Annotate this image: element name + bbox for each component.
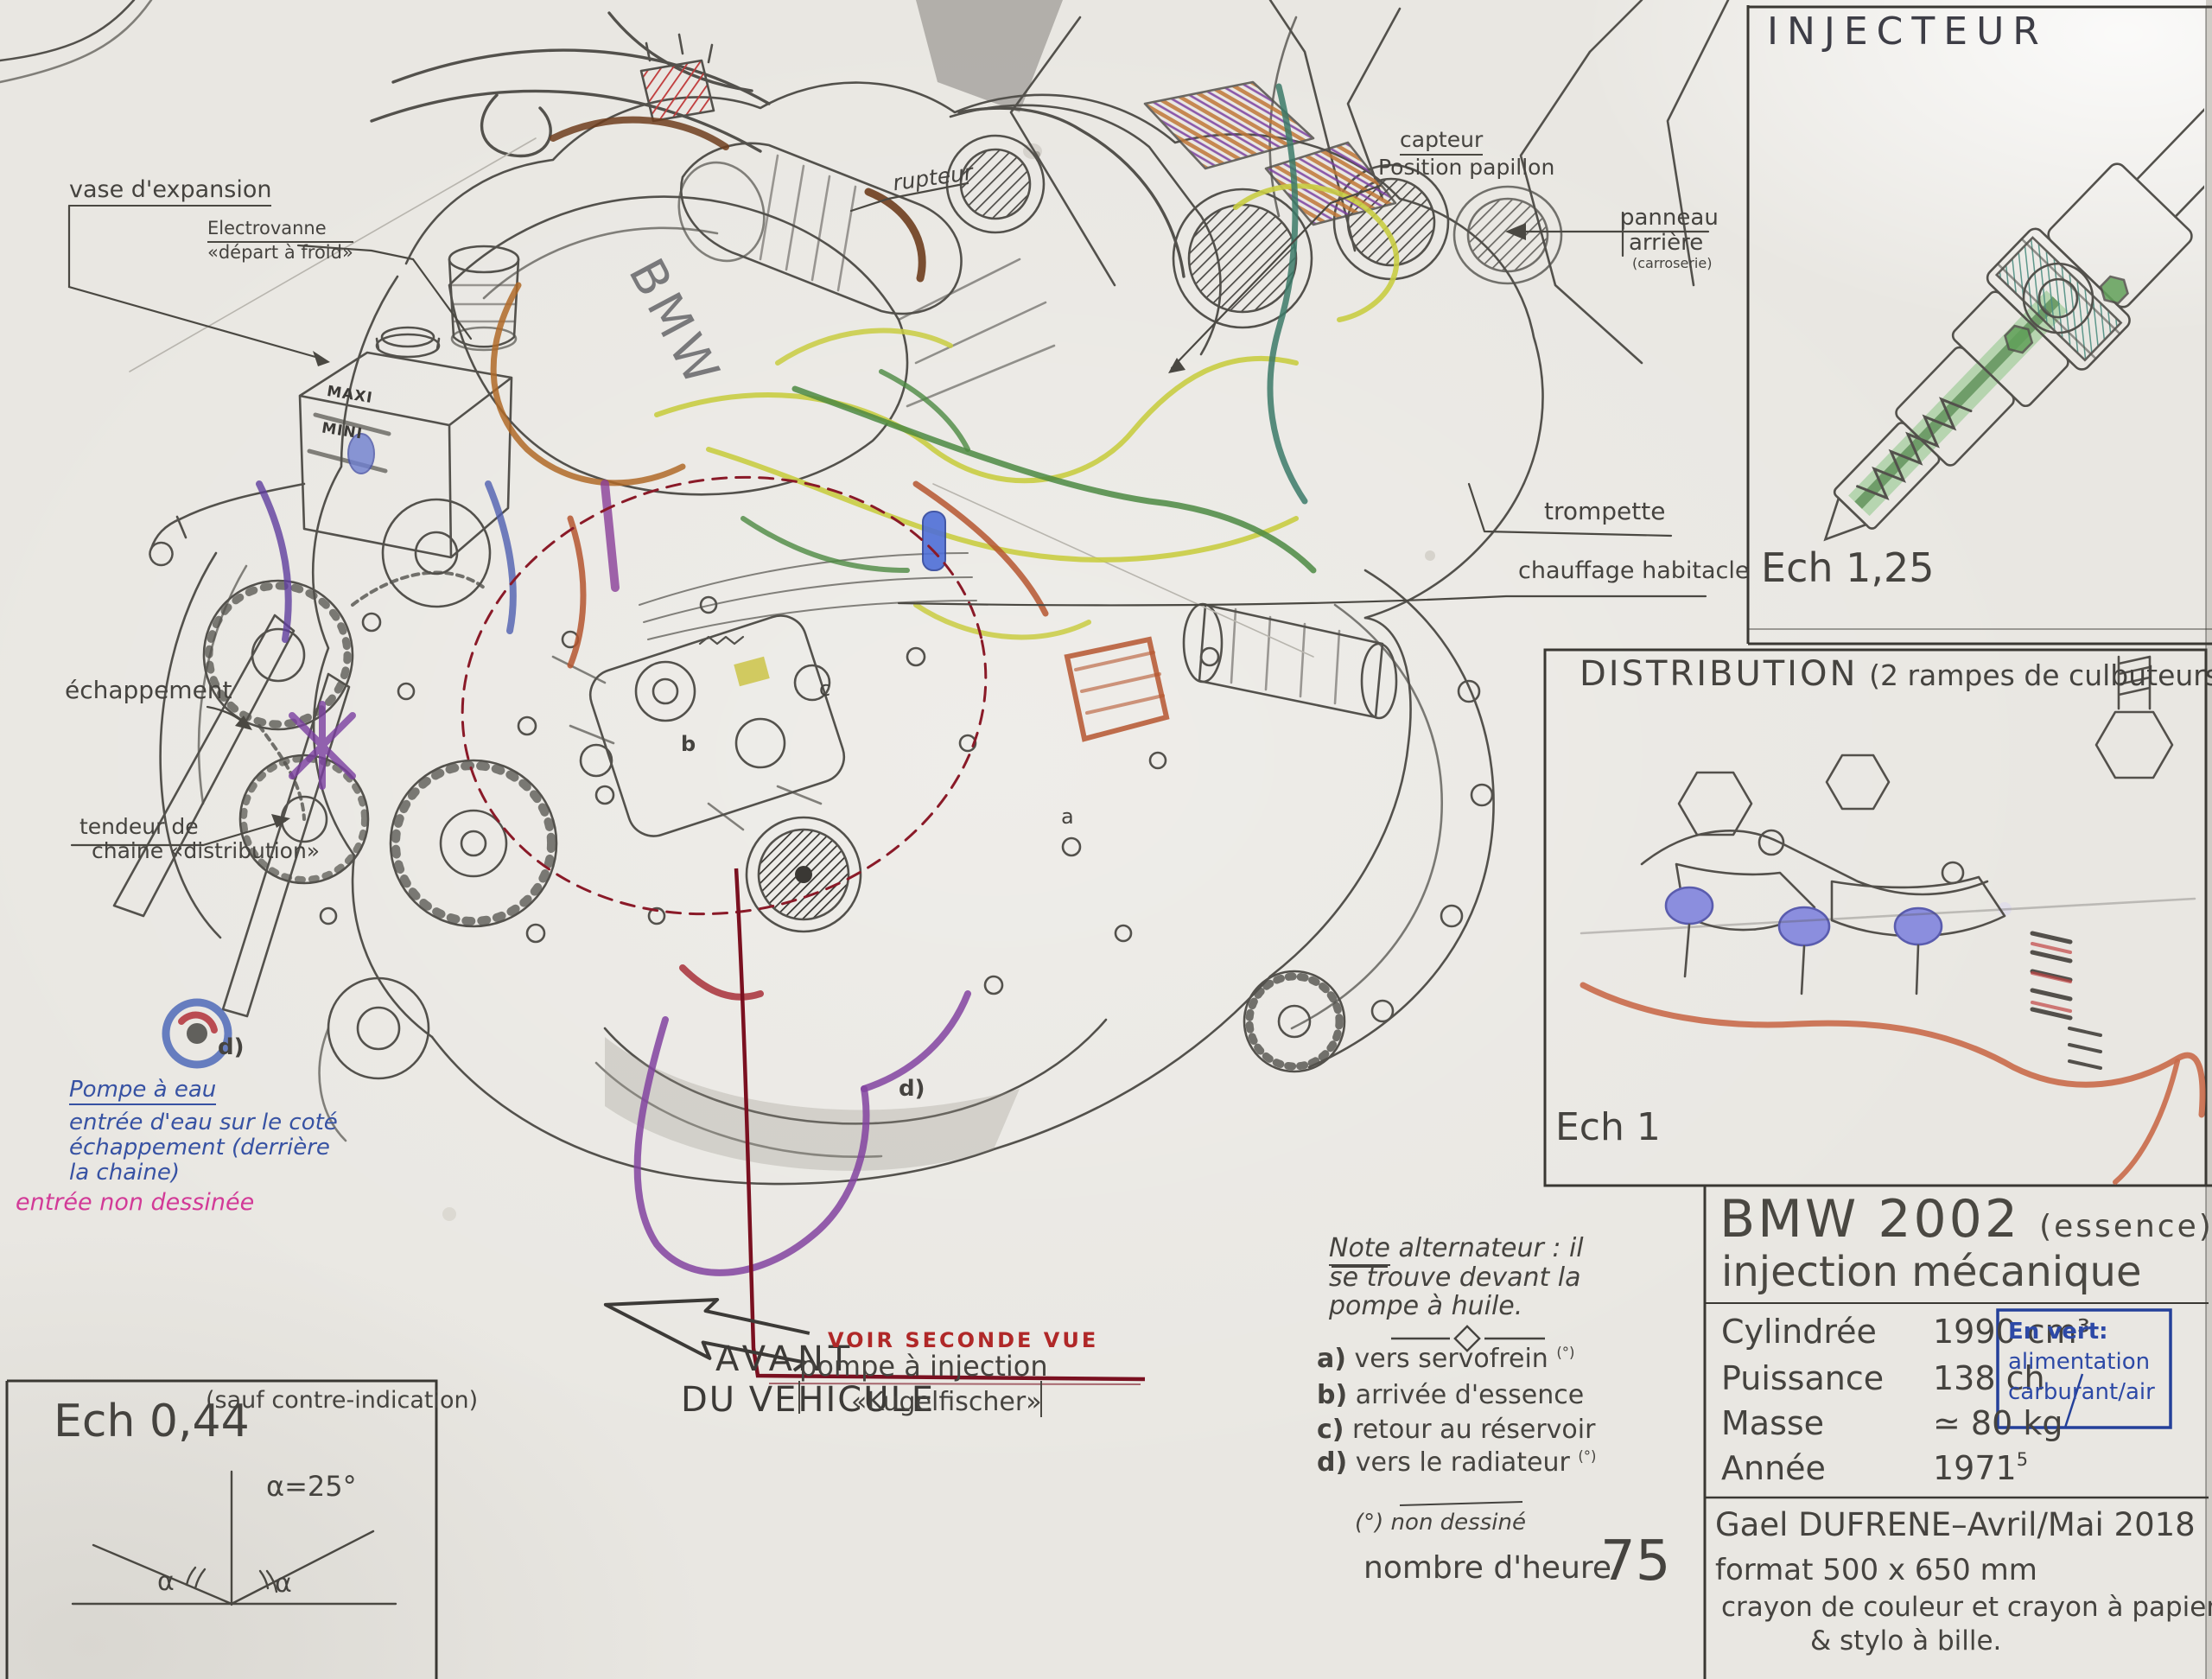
spec-year-mark: 5 <box>2017 1450 2028 1487</box>
green-color-key-note: En vert: alimentation carburant/air <box>2008 1317 2155 1408</box>
label-throttle-line2: Position papillon <box>1378 156 1554 180</box>
spec-model: BMW 2002 <box>1719 1189 2020 1250</box>
distribution-panel-scale: Ech 1 <box>1555 1106 1661 1148</box>
note-item-b-key: b) <box>1317 1380 1347 1410</box>
green-note-line1: En vert: <box>2008 1317 2155 1347</box>
label-throttle-sensor: capteur Position papillon <box>1400 128 1554 180</box>
distribution-title-main: DISTRIBUTION <box>1580 654 1858 694</box>
note-item-a-sup: (°) <box>1556 1345 1574 1361</box>
spec-mass-value: ≃ 80 kg <box>1933 1405 2063 1442</box>
water-pump-line3: échappement (derrière <box>69 1135 338 1161</box>
note-item-d-text: vers le radiateur <box>1356 1447 1579 1478</box>
water-pump-note: Pompe à eau entrée d'eau sur le coté éch… <box>69 1078 338 1186</box>
alternator-note-rest: alternateur : il <box>1390 1233 1584 1263</box>
label-rear-panel-line3: (carroserie) <box>1632 256 1719 271</box>
spec-year-value: 1971 <box>1933 1450 2017 1487</box>
marker-a: a <box>1061 805 1074 829</box>
label-solenoid-line2: «départ à froid» <box>207 243 353 264</box>
signature-materials-line2: & stylo à bille. <box>1810 1626 2001 1657</box>
note-item-a-key: a) <box>1317 1344 1346 1374</box>
label-chain-tensioner-line2: chaine «distribution» <box>92 839 320 863</box>
distribution-panel-title: DISTRIBUTION (2 rampes de culbuteurs) <box>1580 655 2212 694</box>
spec-row-mass: Masse ≃ 80 kg <box>1721 1405 2063 1442</box>
marker-d-left: d) <box>218 1035 245 1060</box>
spec-row-year: Année 1971 5 <box>1721 1450 2028 1487</box>
alternator-note-line3: pompe à huile. <box>1329 1292 1584 1321</box>
water-pump-line2: entrée d'eau sur le coté <box>69 1110 338 1135</box>
alternator-note: Note alternateur : il se trouve devant l… <box>1329 1234 1584 1321</box>
spec-subtitle: injection mécanique <box>1721 1250 2142 1296</box>
spec-mass-label: Masse <box>1721 1405 1933 1442</box>
injector-panel-scale: Ech 1,25 <box>1761 546 1935 591</box>
note-item-d-sup: (°) <box>1578 1448 1596 1465</box>
alternator-note-line2: se trouve devant la <box>1329 1263 1584 1293</box>
injection-pump-label: pompe à injection <box>799 1351 1048 1383</box>
note-item-c-key: c) <box>1317 1415 1344 1445</box>
label-solenoid-line1: Electrovanne <box>207 219 353 243</box>
green-note-line3: carburant/air <box>2008 1377 2155 1408</box>
label-throttle-line1: capteur <box>1400 128 1483 156</box>
spec-fuel: (essence) <box>2039 1209 2212 1244</box>
alternator-note-title: Note <box>1329 1233 1390 1266</box>
spec-row-power: Puissance 138 ch <box>1721 1360 2045 1397</box>
spec-power-label: Puissance <box>1721 1360 1933 1397</box>
marker-b: b <box>681 733 696 756</box>
marker-d-center: d) <box>899 1077 925 1102</box>
note-item-d-key: d) <box>1317 1447 1347 1478</box>
label-trumpet: trompette <box>1544 498 1665 525</box>
hours-label: nombre d'heure <box>1363 1551 1611 1586</box>
distribution-title-sub: (2 rampes de culbuteurs) <box>1869 658 2212 692</box>
note-item-d: d) vers le radiateur (°) <box>1317 1448 1596 1478</box>
injector-panel-title: INJECTEUR <box>1767 10 2048 53</box>
note-item-b: b) arrivée d'essence <box>1317 1381 1584 1410</box>
spec-displacement-label: Cylindrée <box>1721 1313 1933 1351</box>
label-rear-panel: panneau arrière (carroserie) <box>1620 206 1719 271</box>
label-chain-tensioner: tendeur de chaine «distribution» <box>79 815 320 863</box>
alpha-equation: α=25° <box>266 1472 357 1503</box>
green-note-line2: alimentation <box>2008 1347 2155 1377</box>
distribution-sketch <box>1581 657 2202 1182</box>
water-pump-title: Pompe à eau <box>69 1078 216 1105</box>
signature-author-date: Gael DUFRENE–Avril/Mai 2018 <box>1715 1507 2196 1542</box>
label-exhaust: échappement <box>65 677 232 703</box>
marker-c: c <box>819 677 830 701</box>
spec-year-label: Année <box>1721 1450 1933 1487</box>
injector-cutaway <box>1777 39 2212 588</box>
kugelfischer-label: «Kugelfischer» <box>851 1388 1042 1417</box>
note-item-a: a) vers servofrein (°) <box>1317 1345 1574 1374</box>
alpha-left-label: α <box>157 1568 175 1597</box>
label-solenoid: Electrovanne «départ à froid» <box>207 219 353 263</box>
label-chain-tensioner-line1: tendeur de <box>79 815 320 839</box>
note-footnote: (°) non dessiné <box>1355 1510 1526 1536</box>
note-item-c-text: retour au réservoir <box>1352 1415 1595 1445</box>
label-expansion-tank: vase d'expansion <box>69 177 271 207</box>
label-cabin-heating: chauffage habitacle <box>1518 558 1749 584</box>
alpha-right-label: α <box>275 1569 292 1599</box>
scanned-engine-drawing: vase d'expansion Electrovanne «départ à … <box>0 0 2212 1679</box>
hours-value: 75 <box>1600 1531 1670 1593</box>
note-item-c: c) retour au réservoir <box>1317 1415 1595 1445</box>
note-item-b-text: arrivée d'essence <box>1356 1380 1585 1410</box>
note-item-a-text: vers servofrein <box>1355 1344 1557 1374</box>
water-pump-line4: la chaine) <box>69 1161 338 1186</box>
signature-format: format 500 x 650 mm <box>1715 1554 2037 1587</box>
spec-title: BMW 2002 (essence) <box>1719 1191 2212 1249</box>
see-second-view-note: VOIR SECONDE VUE <box>828 1329 1098 1352</box>
label-rear-panel-line1: panneau <box>1620 206 1719 231</box>
signature-materials-line1: crayon de couleur et crayon à papier <box>1721 1593 2212 1623</box>
scale-panel-paren: (sauf contre-indication) <box>206 1388 478 1414</box>
label-rear-panel-line2: arrière <box>1629 231 1719 256</box>
inlet-not-drawn-note: entrée non dessinée <box>16 1190 254 1216</box>
